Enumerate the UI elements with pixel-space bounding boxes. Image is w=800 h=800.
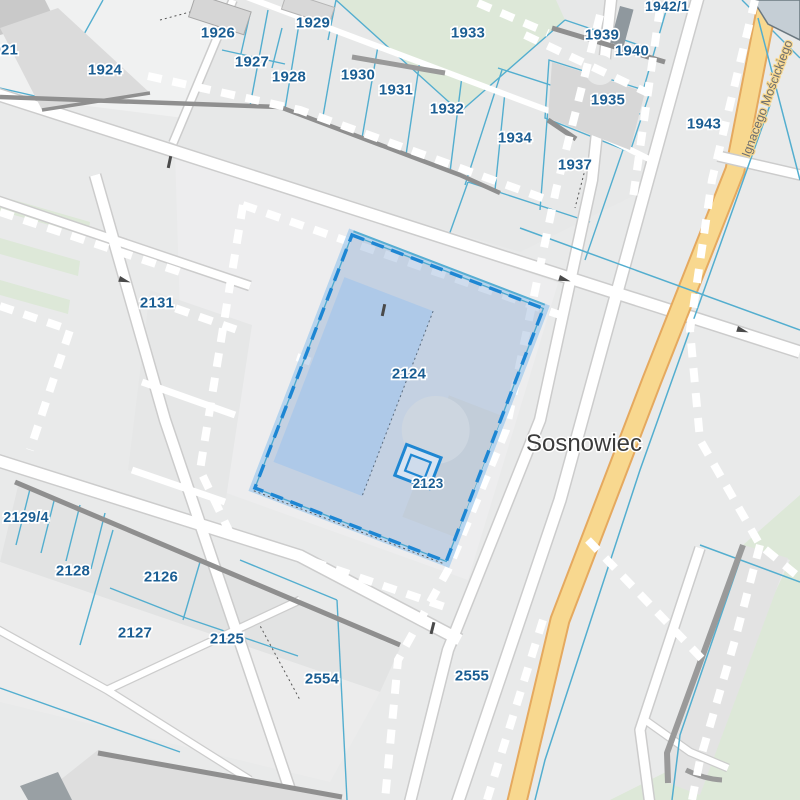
parcel-label-1926[interactable]: 1926: [201, 24, 235, 41]
parcel-label-1932[interactable]: 1932: [430, 100, 464, 117]
parcel-label-2123[interactable]: 2123: [413, 476, 444, 491]
parcel-label-2555[interactable]: 2555: [455, 667, 489, 684]
parcel-label-1929[interactable]: 1929: [296, 14, 330, 31]
city-label: Sosnowiec: [526, 430, 642, 457]
parcel-label-1933[interactable]: 1933: [451, 24, 485, 41]
parcel-label-1931[interactable]: 1931: [379, 81, 413, 98]
parcel-label-1940[interactable]: 1940: [615, 42, 649, 59]
parcel-label-1943[interactable]: 1943: [687, 115, 721, 132]
parcel-label-1928[interactable]: 1928: [272, 68, 306, 85]
parcel-label-1939[interactable]: 1939: [585, 26, 619, 43]
parcel-label-1927[interactable]: 1927: [235, 53, 269, 70]
parcel-label-2124[interactable]: 2124: [392, 365, 427, 382]
parcel-label-1937[interactable]: 1937: [558, 156, 592, 173]
parcel-label-2554[interactable]: 2554: [305, 670, 340, 687]
parcel-label-2129-4[interactable]: 2129/4: [3, 510, 49, 526]
parcel-label-2125[interactable]: 2125: [210, 630, 244, 647]
map-viewport[interactable]: 1921192419261927192819291930193119321933…: [0, 0, 800, 800]
parcel-label-1934[interactable]: 1934: [498, 129, 533, 146]
parcel-label-1935[interactable]: 1935: [591, 91, 625, 108]
parcel-label-1921[interactable]: 1921: [0, 41, 18, 58]
map-canvas[interactable]: 1921192419261927192819291930193119321933…: [0, 0, 800, 800]
parcel-label-1930[interactable]: 1930: [341, 66, 375, 83]
parcel-label-2131[interactable]: 2131: [140, 294, 174, 311]
parcel-label-2127[interactable]: 2127: [118, 624, 152, 641]
parcel-label-2126[interactable]: 2126: [144, 568, 178, 585]
parcel-label-1924[interactable]: 1924: [88, 61, 123, 78]
parcel-label-1942-1[interactable]: 1942/1: [645, 0, 689, 14]
parcel-label-2128[interactable]: 2128: [56, 562, 90, 579]
